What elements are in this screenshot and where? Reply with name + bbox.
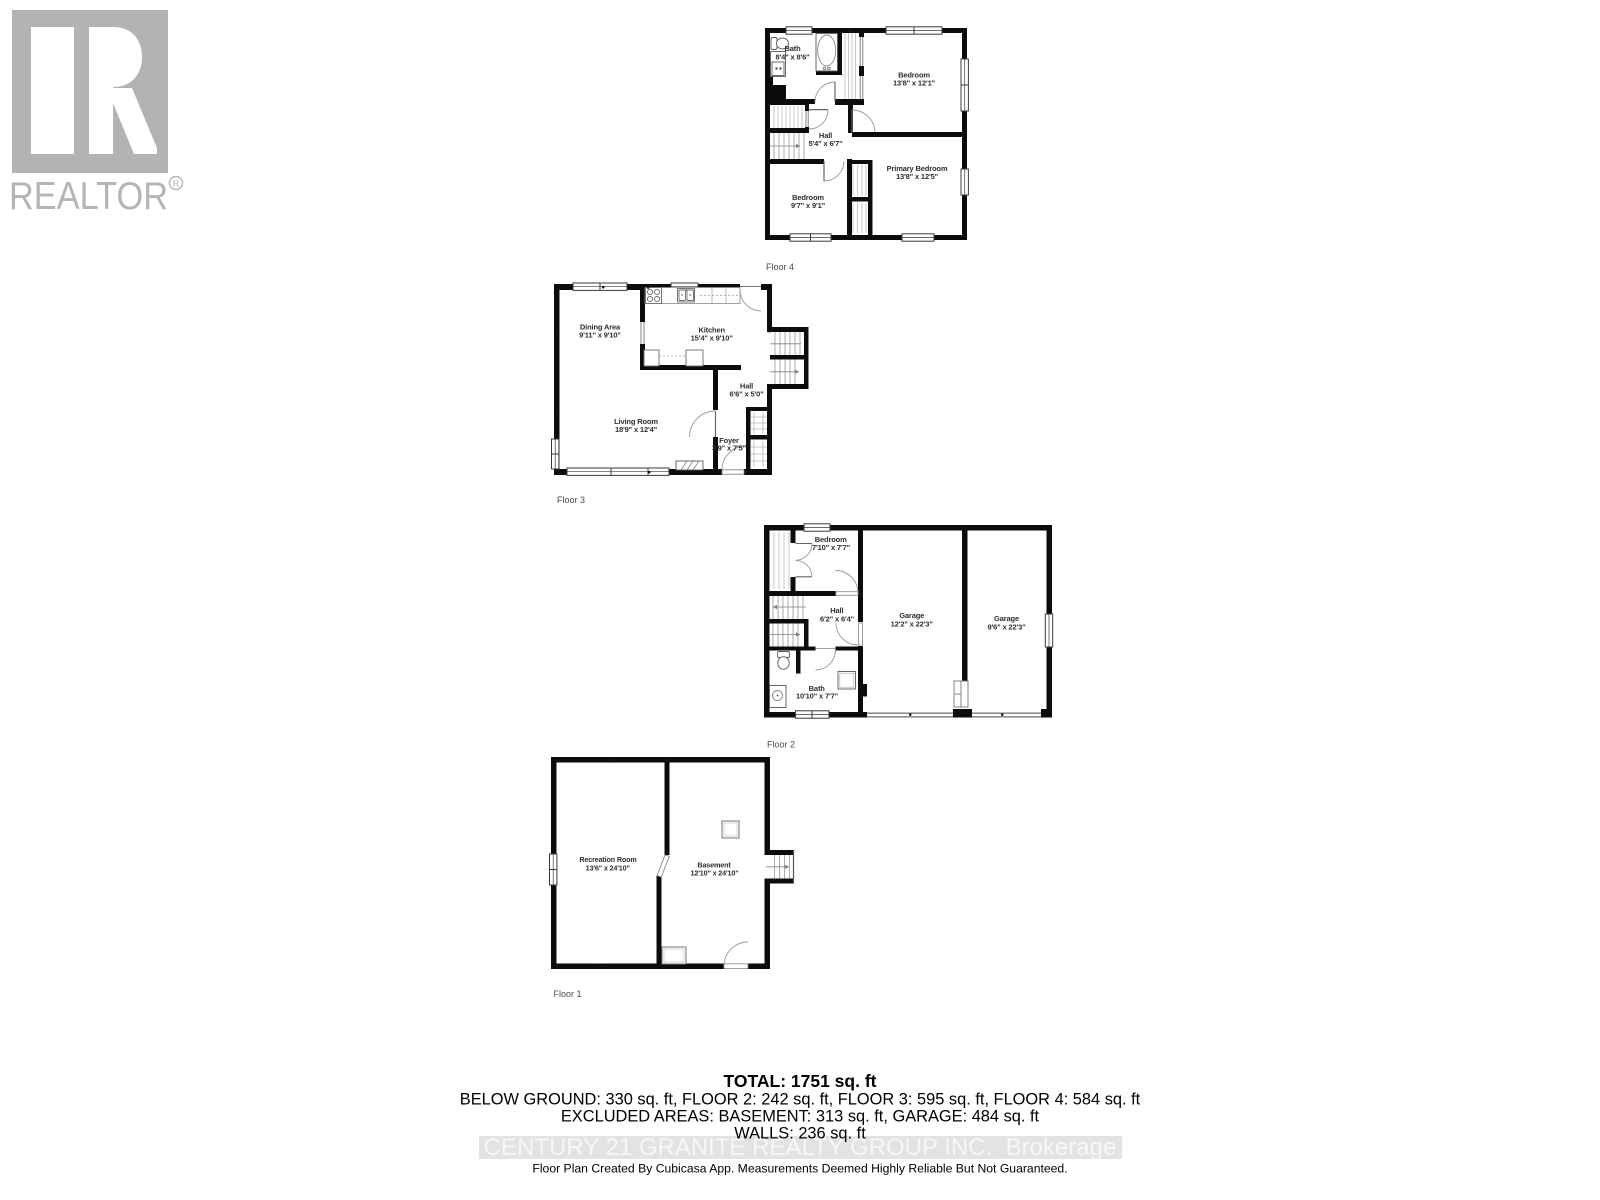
svg-text:Floor 3: Floor 3 [557, 495, 585, 505]
svg-text:Floor Plan Created By Cubicasa: Floor Plan Created By Cubicasa App. Meas… [532, 1162, 1067, 1176]
svg-text:9'6" x 22'3": 9'6" x 22'3" [987, 623, 1026, 632]
svg-text:6'6" x 5'0": 6'6" x 5'0" [729, 390, 764, 399]
svg-text:12'10" x 24'10": 12'10" x 24'10" [691, 869, 739, 878]
svg-text:6'2" x 6'4": 6'2" x 6'4" [820, 615, 855, 624]
svg-text:9'7" x 9'1": 9'7" x 9'1" [791, 201, 826, 210]
svg-text:10'10" x 7'7": 10'10" x 7'7" [796, 692, 839, 701]
svg-text:13'8" x 12'5": 13'8" x 12'5" [896, 172, 939, 181]
svg-text:Floor 4: Floor 4 [766, 262, 794, 272]
svg-text:REALTOR: REALTOR [9, 175, 168, 218]
svg-text:13'8" x 12'1": 13'8" x 12'1" [893, 79, 936, 88]
svg-text:8'4" x 8'6": 8'4" x 8'6" [775, 53, 810, 62]
svg-text:BELOW GROUND: 330 sq. ft, FLOO: BELOW GROUND: 330 sq. ft, FLOOR 2: 242 s… [460, 1091, 1141, 1109]
svg-text:5'4" x 6'7": 5'4" x 6'7" [808, 139, 843, 148]
svg-text:Floor 1: Floor 1 [554, 989, 582, 999]
svg-text:18'9" x 12'4": 18'9" x 12'4" [615, 425, 658, 434]
svg-text:TOTAL: 1751 sq. ft: TOTAL: 1751 sq. ft [724, 1071, 877, 1091]
svg-text:3'9" x 7'5": 3'9" x 7'5" [712, 444, 747, 453]
svg-text:EXCLUDED AREAS: BASEMENT: 313: EXCLUDED AREAS: BASEMENT: 313 sq. ft, GA… [561, 1108, 1040, 1126]
svg-text:13'6" x 24'10": 13'6" x 24'10" [586, 864, 630, 873]
svg-text:12'2" x 22'3": 12'2" x 22'3" [891, 620, 934, 629]
svg-text:R: R [173, 179, 180, 189]
svg-text:WALLS: 236 sq. ft: WALLS: 236 sq. ft [734, 1125, 866, 1143]
svg-text:7'10" x 7'7": 7'10" x 7'7" [812, 543, 851, 552]
svg-text:9'11" x 9'10": 9'11" x 9'10" [579, 331, 621, 340]
svg-text:Floor 2: Floor 2 [767, 740, 795, 750]
svg-text:15'4" x 9'10": 15'4" x 9'10" [691, 334, 734, 343]
